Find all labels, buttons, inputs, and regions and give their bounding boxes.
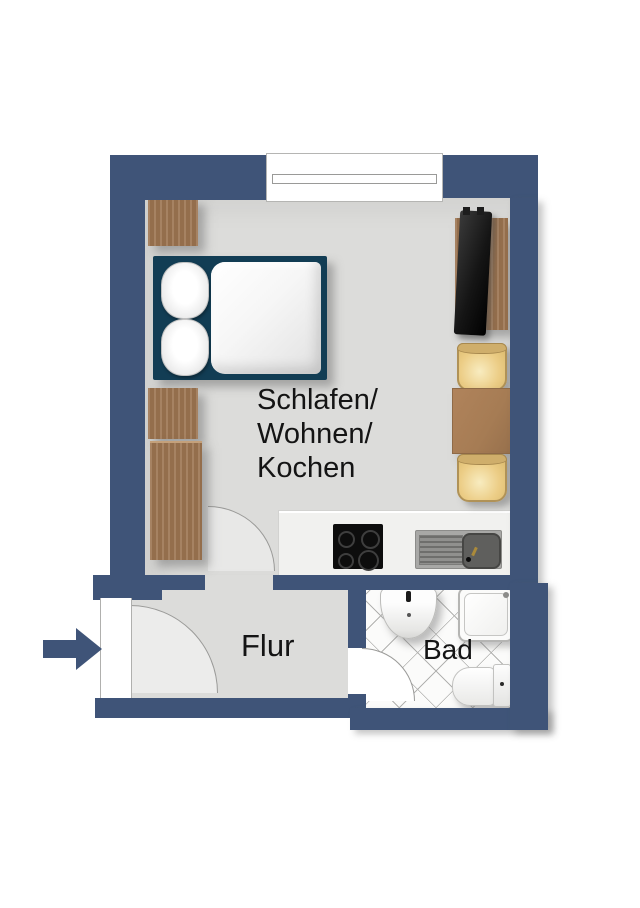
hallway-label: Flur	[241, 628, 294, 664]
wall-top-right	[440, 155, 538, 198]
wall-mid-left	[140, 575, 205, 590]
burner-icon	[358, 550, 379, 571]
shower-tray	[464, 593, 508, 636]
window-glass-lines	[272, 174, 437, 184]
shower-faucet	[503, 592, 509, 598]
entrance-arrow	[43, 640, 77, 658]
wardrobe-low	[150, 441, 202, 560]
entrance-arrow-head	[76, 628, 102, 670]
kitchen-sink	[415, 530, 502, 569]
wall-left	[110, 155, 145, 600]
burner-icon	[338, 553, 354, 569]
bathroom-label: Bad	[423, 634, 473, 666]
toilet-bowl	[452, 667, 497, 706]
window-tick	[436, 174, 437, 183]
burner-icon	[338, 531, 355, 548]
sink-drainboard	[419, 535, 463, 565]
sink-basin	[462, 533, 501, 569]
sink-drain	[466, 557, 471, 562]
duvet	[211, 262, 321, 374]
chair	[457, 343, 507, 391]
pillow	[161, 262, 209, 319]
floor-plan: Schlafen/ Wohnen/ Kochen Flur Bad	[0, 0, 640, 908]
tv	[454, 210, 492, 336]
window	[266, 153, 443, 202]
tv-foot	[477, 207, 484, 215]
toilet	[452, 664, 509, 706]
burner-icon	[361, 530, 380, 549]
wall-flur-bottom	[95, 698, 362, 718]
chair-back	[457, 343, 507, 354]
wall-right-main	[510, 198, 538, 590]
wardrobe-top	[148, 198, 198, 246]
wall-mid-right	[273, 575, 510, 590]
table	[452, 388, 512, 454]
main-room-label: Schlafen/ Wohnen/ Kochen	[257, 383, 378, 485]
chair	[457, 454, 507, 502]
cabinet-mid	[148, 388, 198, 439]
chair-back	[457, 454, 507, 465]
washbasin-drain	[407, 613, 411, 617]
toilet-flush-button	[500, 682, 504, 686]
wall-flur-bad-upper	[348, 588, 366, 648]
washbasin-faucet	[406, 591, 411, 602]
wall-bad-right	[510, 583, 548, 730]
bed	[153, 256, 327, 380]
window-tick	[272, 174, 273, 183]
cooktop	[333, 524, 383, 569]
entry-door	[100, 598, 132, 698]
door-opening-main	[205, 575, 273, 590]
tv-foot	[463, 207, 470, 215]
pillow	[161, 319, 209, 376]
